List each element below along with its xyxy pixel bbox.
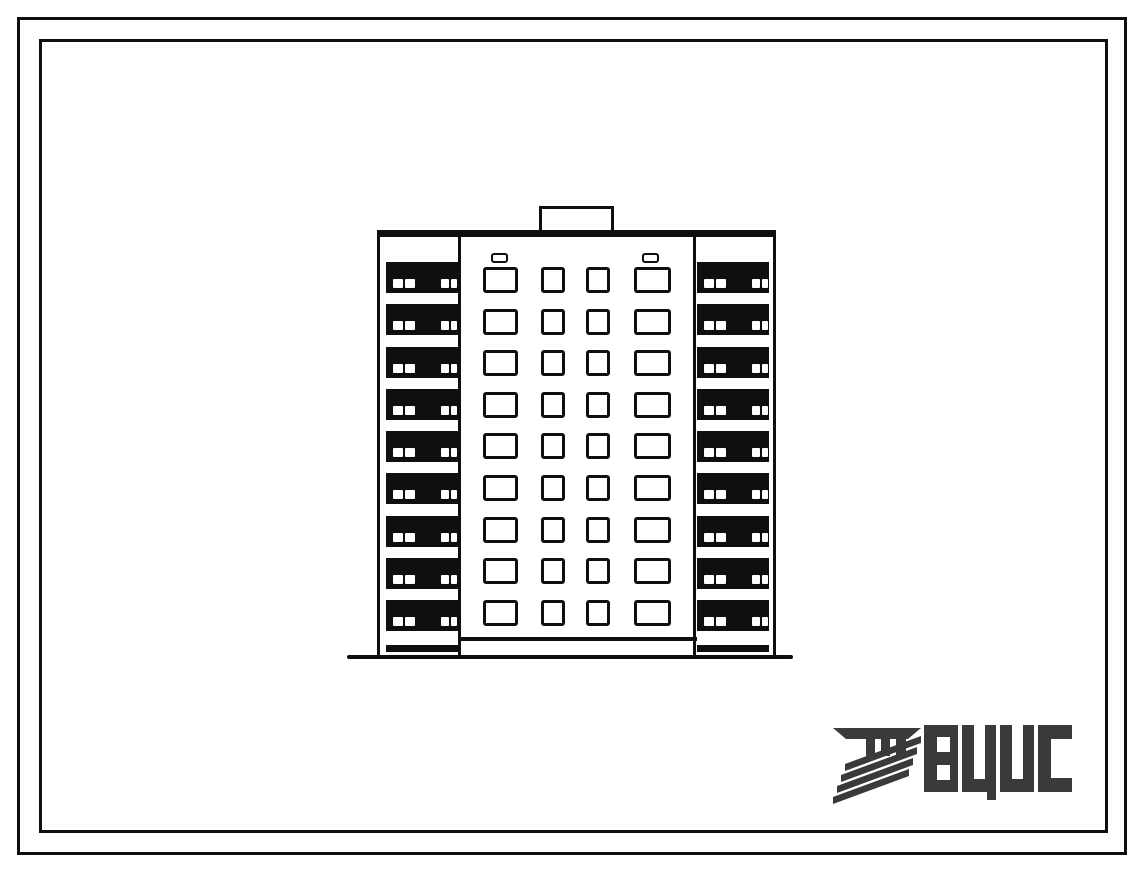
window: [634, 475, 671, 501]
window: [541, 600, 565, 626]
window: [483, 350, 518, 376]
balcony-door-glimpse: [405, 448, 415, 457]
balcony-door-glimpse: [752, 617, 760, 626]
balcony-door-glimpse: [704, 575, 714, 584]
balcony-door-glimpse: [762, 364, 768, 373]
wall-base-line: [458, 637, 702, 641]
balcony-door-glimpse: [405, 533, 415, 542]
window: [541, 517, 565, 543]
balcony-door-glimpse: [451, 279, 457, 288]
balcony-door-glimpse: [762, 575, 768, 584]
balcony-door-glimpse: [762, 617, 768, 626]
balcony-door-glimpse: [704, 490, 714, 499]
window: [483, 433, 518, 459]
window: [483, 517, 518, 543]
balcony-door-glimpse: [752, 364, 760, 373]
balcony-door-glimpse: [441, 575, 449, 584]
logo-text: [922, 724, 1074, 804]
balcony-band: [697, 262, 769, 293]
balcony-band: [386, 262, 458, 293]
balcony-door-glimpse: [405, 490, 415, 499]
balcony-door-glimpse: [405, 364, 415, 373]
balcony-band: [697, 600, 769, 631]
window: [483, 309, 518, 335]
balcony-door-glimpse: [441, 406, 449, 415]
balcony-door-glimpse: [752, 448, 760, 457]
balcony-door-glimpse: [451, 448, 457, 457]
balcony-band: [697, 516, 769, 547]
balcony-door-glimpse: [393, 321, 403, 330]
balcony-door-glimpse: [704, 406, 714, 415]
balcony-door-glimpse: [716, 279, 726, 288]
logo: ВЦИС: [833, 724, 1083, 808]
balcony-band: [386, 558, 458, 589]
balcony-door-glimpse: [441, 533, 449, 542]
window: [586, 433, 610, 459]
balcony-band: [386, 431, 458, 462]
window: [634, 392, 671, 418]
balcony-door-glimpse: [752, 490, 760, 499]
window: [541, 350, 565, 376]
balcony-door-glimpse: [451, 533, 457, 542]
window: [541, 267, 565, 293]
balcony-door-glimpse: [393, 448, 403, 457]
plinth-strip: [386, 645, 458, 652]
balcony-door-glimpse: [716, 364, 726, 373]
window: [483, 475, 518, 501]
window: [541, 309, 565, 335]
balcony-door-glimpse: [716, 533, 726, 542]
balcony-door-glimpse: [441, 617, 449, 626]
balcony-band: [697, 389, 769, 420]
balcony-band: [697, 347, 769, 378]
window: [483, 392, 518, 418]
balcony-door-glimpse: [704, 364, 714, 373]
window: [586, 558, 610, 584]
balcony-door-glimpse: [704, 533, 714, 542]
balcony-door-glimpse: [441, 364, 449, 373]
balcony-door-glimpse: [451, 406, 457, 415]
balcony-band: [697, 558, 769, 589]
window: [541, 433, 565, 459]
balcony-door-glimpse: [405, 617, 415, 626]
window: [483, 558, 518, 584]
balcony-door-glimpse: [762, 490, 768, 499]
balcony-door-glimpse: [405, 321, 415, 330]
balcony-band: [386, 389, 458, 420]
balcony-door-glimpse: [762, 279, 768, 288]
window: [634, 600, 671, 626]
balcony-door-glimpse: [716, 448, 726, 457]
window: [634, 350, 671, 376]
balcony-door-glimpse: [393, 575, 403, 584]
logo-emblem-icon: [833, 726, 921, 806]
window: [634, 267, 671, 293]
balcony-door-glimpse: [451, 490, 457, 499]
balcony-door-glimpse: [451, 617, 457, 626]
balcony-door-glimpse: [451, 364, 457, 373]
balcony-door-glimpse: [451, 321, 457, 330]
building-right-edge: [773, 230, 776, 659]
balcony-door-glimpse: [704, 279, 714, 288]
balcony-door-glimpse: [704, 617, 714, 626]
balcony-door-glimpse: [752, 406, 760, 415]
balcony-column-right: [697, 237, 769, 655]
window: [634, 309, 671, 335]
balcony-door-glimpse: [393, 279, 403, 288]
roof-parapet-band: [377, 230, 776, 237]
window: [634, 433, 671, 459]
balcony-column-left: [386, 237, 458, 655]
balcony-door-glimpse: [405, 406, 415, 415]
balcony-band: [697, 304, 769, 335]
balcony-door-glimpse: [441, 490, 449, 499]
balcony-band: [386, 304, 458, 335]
balcony-door-glimpse: [752, 321, 760, 330]
window: [634, 558, 671, 584]
balcony-door-glimpse: [762, 448, 768, 457]
balcony-door-glimpse: [762, 321, 768, 330]
window: [586, 475, 610, 501]
ground-line: [347, 655, 793, 659]
building-left-edge: [377, 230, 380, 659]
window: [586, 309, 610, 335]
window: [586, 517, 610, 543]
balcony-door-glimpse: [762, 406, 768, 415]
balcony-door-glimpse: [405, 575, 415, 584]
facade-wall: [458, 237, 696, 655]
balcony-door-glimpse: [716, 575, 726, 584]
plinth-strip: [697, 645, 769, 652]
balcony-door-glimpse: [393, 364, 403, 373]
window: [586, 267, 610, 293]
window: [483, 267, 518, 293]
attic-vent-window: [642, 253, 659, 263]
balcony-band: [697, 473, 769, 504]
balcony-band: [386, 347, 458, 378]
window: [541, 558, 565, 584]
balcony-door-glimpse: [441, 448, 449, 457]
balcony-door-glimpse: [704, 448, 714, 457]
balcony-door-glimpse: [762, 533, 768, 542]
balcony-door-glimpse: [441, 321, 449, 330]
balcony-door-glimpse: [716, 490, 726, 499]
balcony-door-glimpse: [752, 533, 760, 542]
balcony-band: [386, 473, 458, 504]
balcony-door-glimpse: [752, 279, 760, 288]
window: [541, 392, 565, 418]
balcony-door-glimpse: [393, 490, 403, 499]
balcony-door-glimpse: [752, 575, 760, 584]
balcony-door-glimpse: [716, 321, 726, 330]
window: [634, 517, 671, 543]
window: [483, 600, 518, 626]
balcony-band: [386, 600, 458, 631]
balcony-door-glimpse: [704, 321, 714, 330]
window: [586, 392, 610, 418]
balcony-door-glimpse: [405, 279, 415, 288]
window: [586, 600, 610, 626]
balcony-door-glimpse: [441, 279, 449, 288]
balcony-door-glimpse: [393, 533, 403, 542]
balcony-door-glimpse: [393, 617, 403, 626]
attic-vent-window: [491, 253, 508, 263]
window: [541, 475, 565, 501]
balcony-door-glimpse: [393, 406, 403, 415]
balcony-band: [386, 516, 458, 547]
window: [586, 350, 610, 376]
balcony-door-glimpse: [451, 575, 457, 584]
balcony-door-glimpse: [716, 617, 726, 626]
balcony-band: [697, 431, 769, 462]
balcony-door-glimpse: [716, 406, 726, 415]
